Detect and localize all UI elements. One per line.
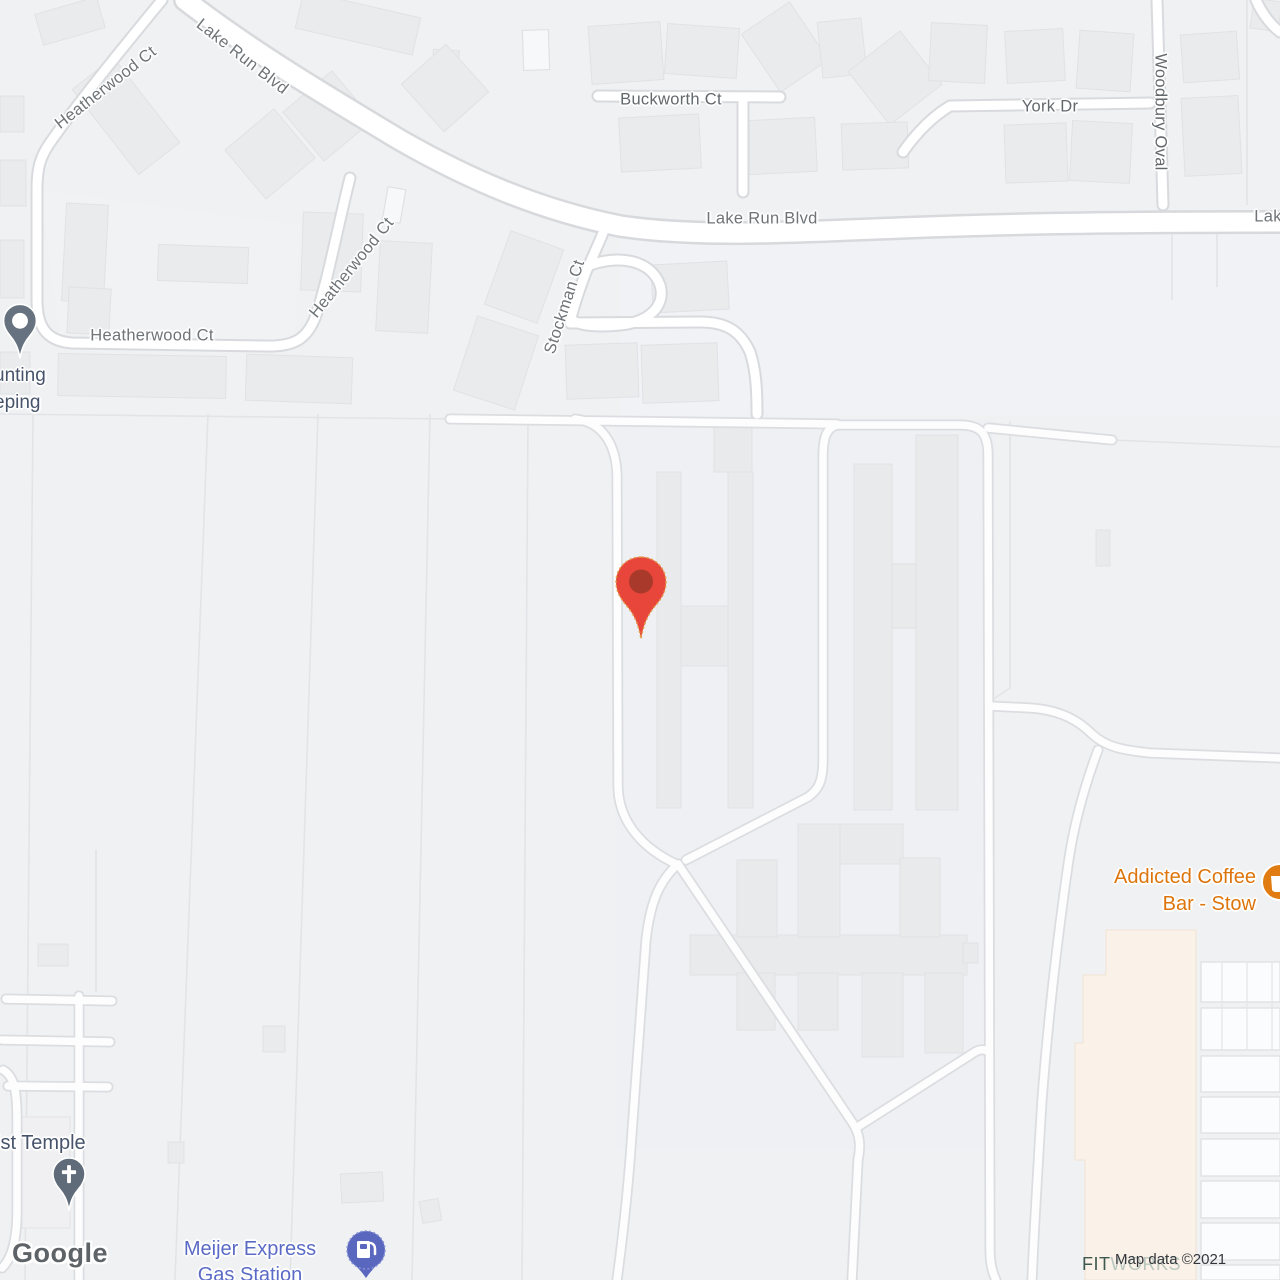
destination-pin-dot [629,570,653,594]
gas-pin-icon[interactable] [344,1229,388,1280]
poi-label-coffee-line1: Addicted Coffee [1114,864,1256,891]
fitworks-building [1075,930,1196,1280]
poi-label-gas-line1: Meijer Express [184,1236,316,1262]
coffee-badge-icon[interactable] [1260,862,1280,902]
google-logo[interactable]: Google [12,1238,108,1269]
poi-label-gas[interactable]: Meijer Express Gas Station [184,1236,316,1280]
road-label-buckworth: Buckworth Ct [620,91,722,110]
map-canvas[interactable]: Heatherwood Ct Lake Run Blvd Buckworth C… [0,0,1280,1280]
poi-label-fitworks-part1: FIT [1082,1254,1111,1274]
poi-label-temple[interactable]: ist Temple [0,1131,86,1156]
business-pin-icon[interactable] [0,303,40,361]
parking-rows [1201,962,1280,1280]
poi-label-gas-line2: Gas Station [184,1262,316,1280]
road-label-heatherwood-s: Heatherwood Ct [90,327,213,346]
road-label-york: York Dr [1022,98,1079,117]
destination-pin[interactable] [613,555,669,643]
poi-label-accounting-line2: eping [0,389,46,416]
road-label-woodbury: Woodbury Oval [1151,53,1170,170]
business-pin-body [4,304,37,358]
poi-label-accounting-line1: unting [0,362,46,389]
road-label-lake-run-cutoff: Lak [1254,208,1280,227]
business-pin-dot [12,313,28,329]
poi-label-coffee[interactable]: Addicted Coffee Bar - Stow [1114,864,1256,918]
road-label-lake-run-mid: Lake Run Blvd [706,210,817,229]
destination-pin-body [616,557,666,639]
poi-label-accounting[interactable]: unting eping [0,362,46,416]
poi-label-coffee-line2: Bar - Stow [1114,891,1256,918]
coffee-cup-icon [1271,876,1280,892]
map-attribution: Map data ©2021 [1115,1251,1226,1268]
church-pin-icon[interactable] [51,1156,87,1214]
